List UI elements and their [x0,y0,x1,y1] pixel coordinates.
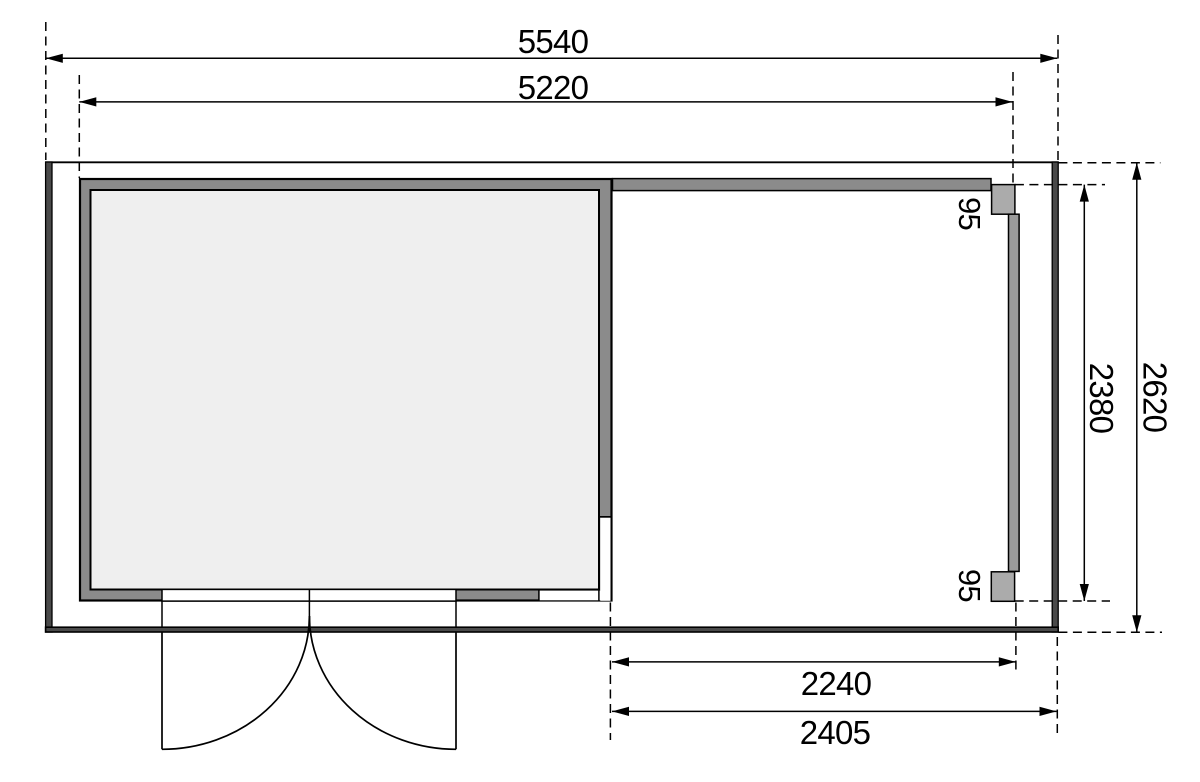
svg-text:2620: 2620 [1137,362,1174,433]
svg-text:5540: 5540 [518,23,589,60]
svg-text:2380: 2380 [1083,363,1120,434]
svg-text:2405: 2405 [800,714,871,751]
svg-text:95: 95 [952,197,987,230]
svg-text:5220: 5220 [518,69,589,106]
svg-text:2240: 2240 [801,665,872,702]
svg-text:95: 95 [952,569,987,602]
